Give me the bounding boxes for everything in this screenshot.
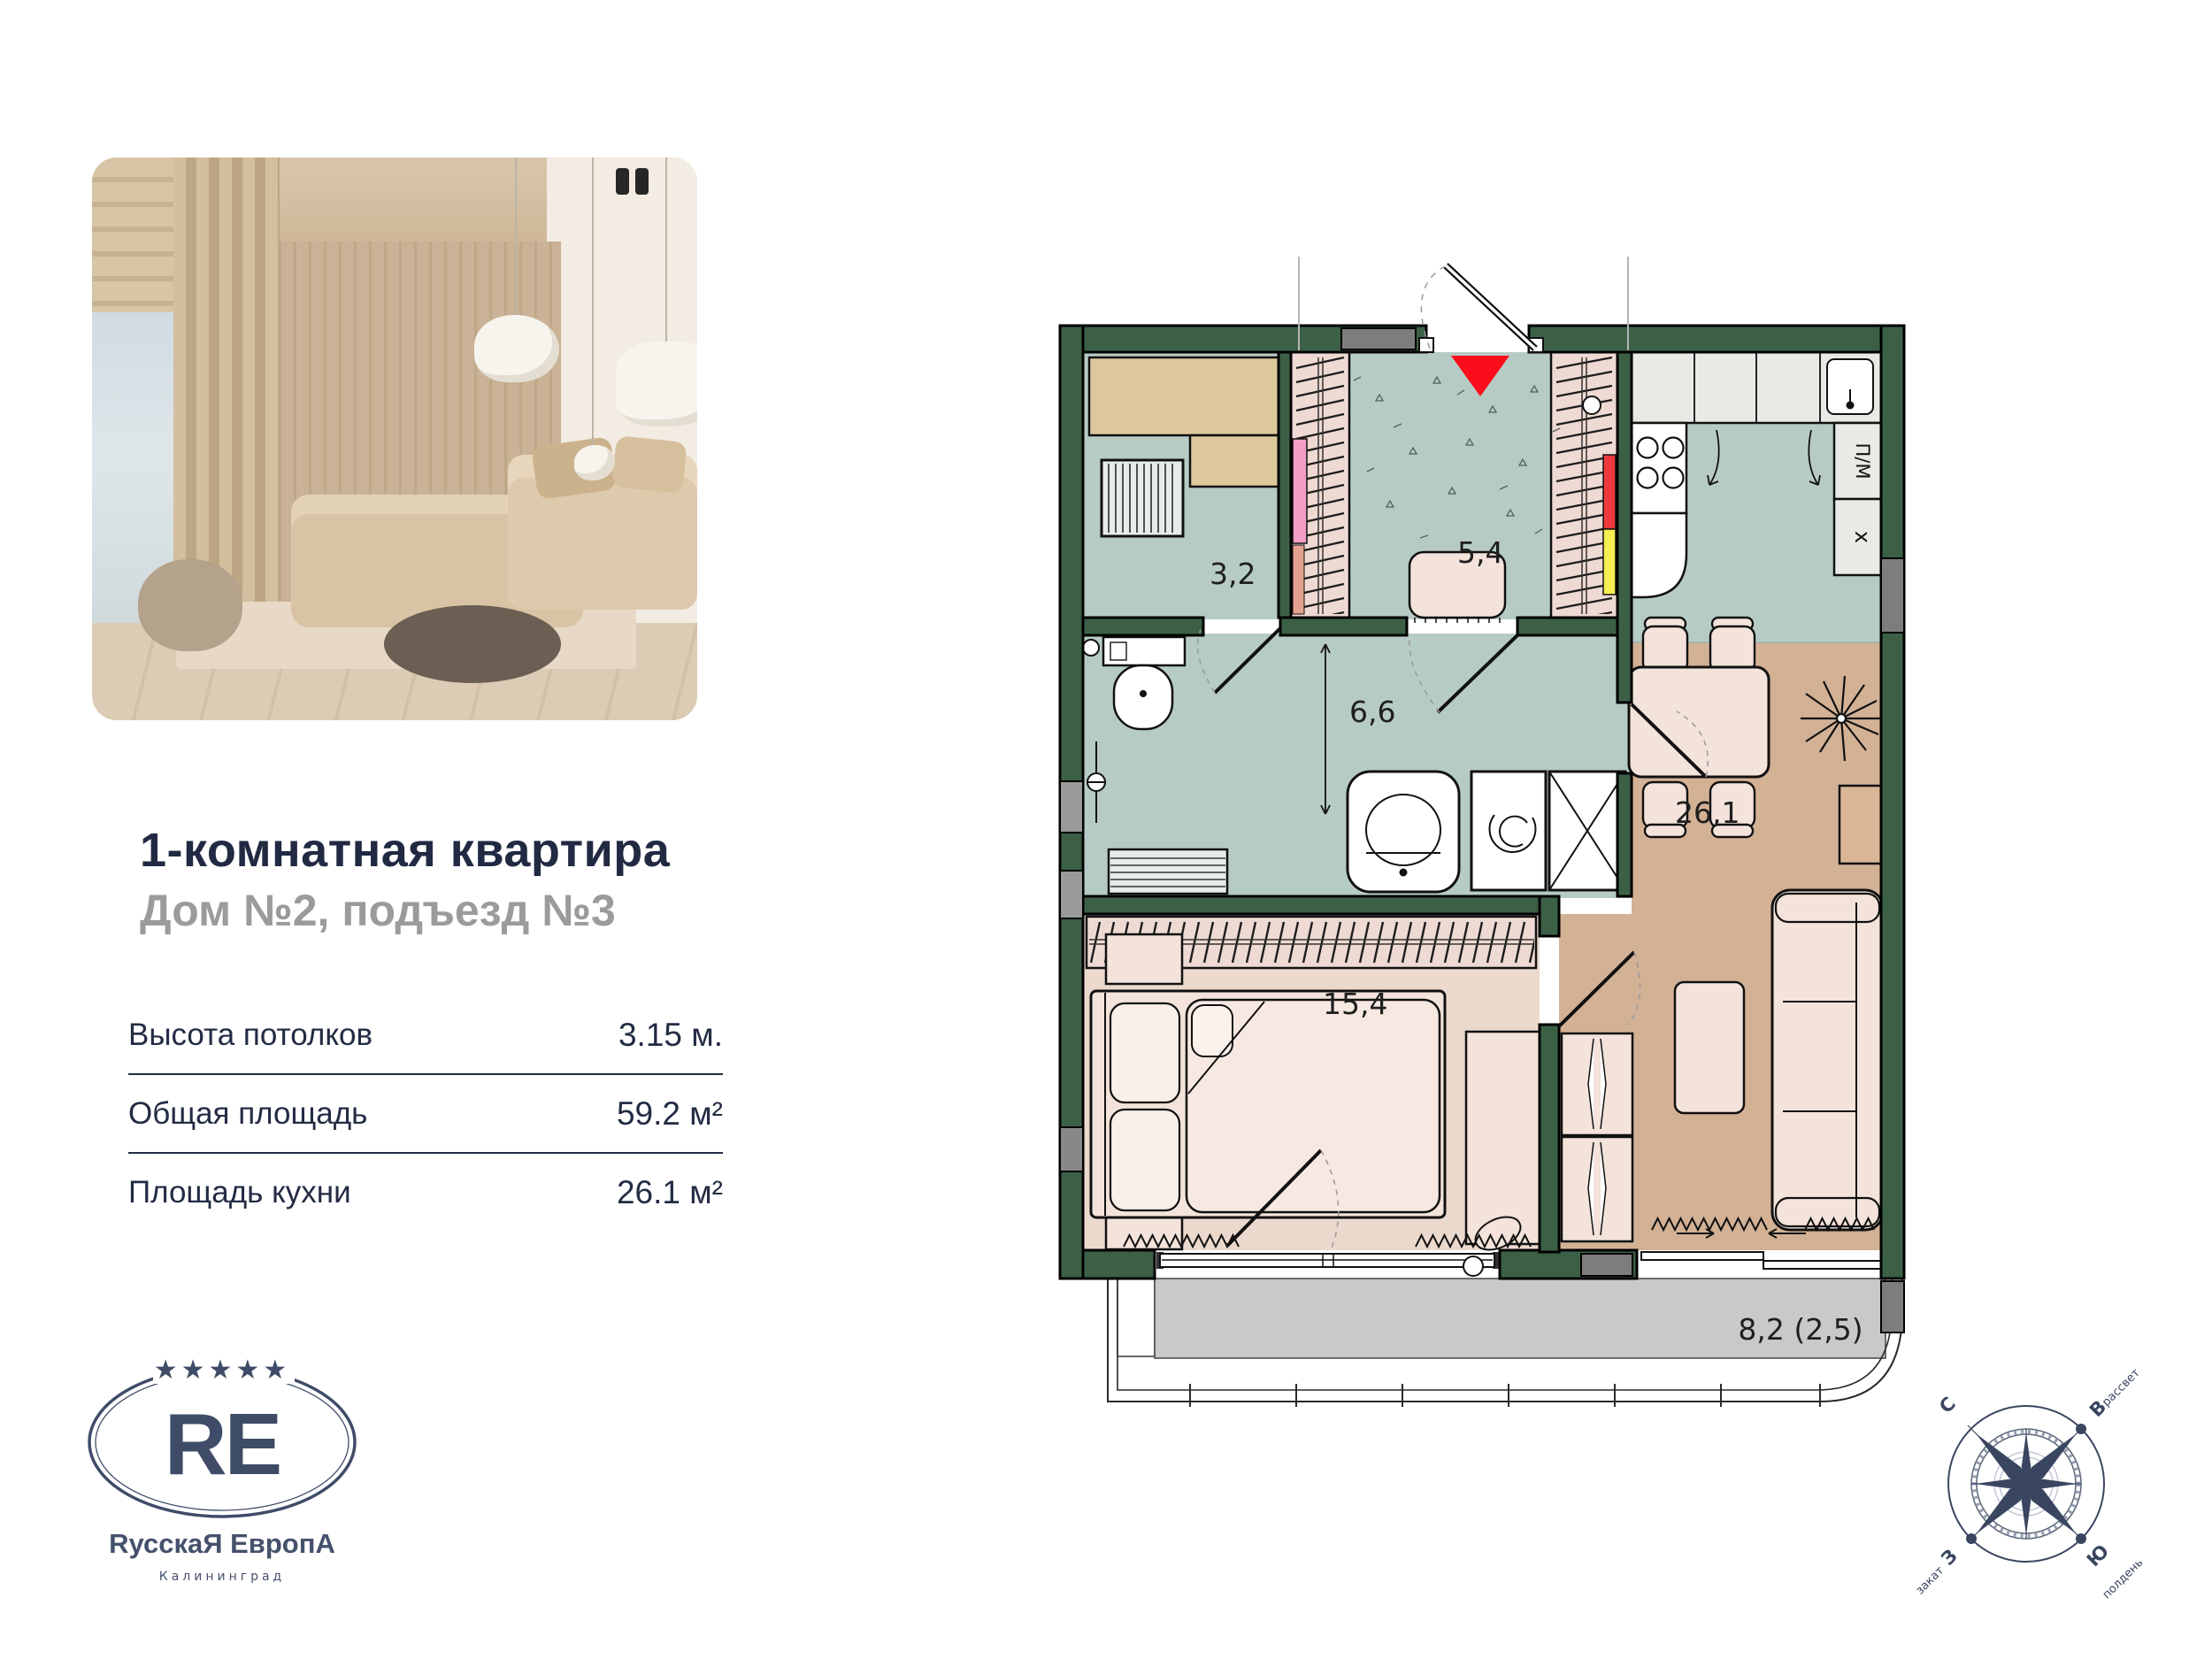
balcony: 8,2 (2,5)	[1108, 1279, 1902, 1407]
photo-ceiling-spot	[635, 168, 649, 195]
photo-pendant-lamp	[616, 342, 697, 426]
desk-icon	[1466, 1032, 1540, 1244]
developer-logo: ★★★★★ RE RусскаЯ ЕвропА Калининград	[78, 1345, 379, 1593]
page-title: 1-комнатная квартира	[140, 823, 670, 878]
coffee-table-icon	[1675, 982, 1744, 1113]
spec-label: Общая площадь	[128, 1096, 367, 1132]
floor-plan: 8,2 (2,5)	[1057, 255, 1907, 1449]
photo-pendant-lamp	[474, 315, 559, 382]
living-cabinets	[1562, 1033, 1632, 1241]
flat-flyer-page: 1-комнатная квартира Дом №2, подъезд №3 …	[0, 0, 2212, 1659]
compass-south-label: Ю	[2083, 1540, 2113, 1571]
room-label-storage: 3,2	[1210, 557, 1256, 591]
photo-lamp-cord	[592, 157, 594, 449]
logo-brand: RусскаЯ ЕвропА	[109, 1528, 335, 1559]
room-label-kitchen-living: 26,1	[1675, 795, 1740, 830]
compass-noon-label: полдень	[2101, 1556, 2147, 1602]
room-label-bedroom: 15,4	[1323, 987, 1387, 1021]
compass-dawn-label: рассвет	[2100, 1366, 2143, 1409]
page-subtitle: Дом №2, подъезд №3	[140, 885, 616, 936]
spec-row-ceiling-height: Высота потолков 3.15 м.	[128, 996, 723, 1073]
interior-photo	[92, 157, 697, 720]
compass-west-label: З	[1937, 1545, 1962, 1570]
spec-value: 59.2 м²	[617, 1095, 723, 1133]
photo-ceiling-spot	[616, 168, 629, 195]
spec-row-total-area: Общая площадь 59.2 м²	[128, 1073, 723, 1152]
dishwasher-label: П/М	[1852, 443, 1873, 480]
bedroom-furniture	[1087, 917, 1540, 1256]
logo-monogram: RE	[165, 1395, 280, 1493]
compass-sunset-label: закат	[1914, 1563, 1947, 1597]
photo-side-table	[138, 559, 242, 651]
logo-city: Калининград	[159, 1570, 285, 1584]
compass-star-icon	[1966, 1424, 2086, 1544]
hood-label: х	[1850, 531, 1875, 543]
spec-label: Площадь кухни	[128, 1175, 351, 1210]
spec-value: 26.1 м²	[617, 1174, 723, 1211]
room-label-hallway: 5,4	[1457, 535, 1503, 570]
photo-lamp-cord	[515, 157, 517, 317]
logo-stars: ★★★★★	[154, 1355, 290, 1386]
photo-coffee-table	[384, 605, 561, 683]
side-table-icon	[1839, 786, 1883, 864]
spec-value: 3.15 м.	[618, 1017, 723, 1054]
compass-north-label: С	[1935, 1393, 1960, 1417]
room-label-balcony: 8,2 (2,5)	[1738, 1312, 1863, 1347]
room-label-bathroom: 6,6	[1349, 695, 1395, 729]
spec-row-kitchen-area: Площадь кухни 26.1 м²	[128, 1152, 723, 1231]
photo-lamp-cord	[665, 157, 667, 343]
spec-label: Высота потолков	[128, 1018, 373, 1053]
compass-rose: С В Ю З рассвет полдень закат	[1902, 1358, 2150, 1615]
photo-pillow	[611, 435, 687, 494]
spec-table: Высота потолков 3.15 м. Общая площадь 59…	[128, 996, 723, 1231]
